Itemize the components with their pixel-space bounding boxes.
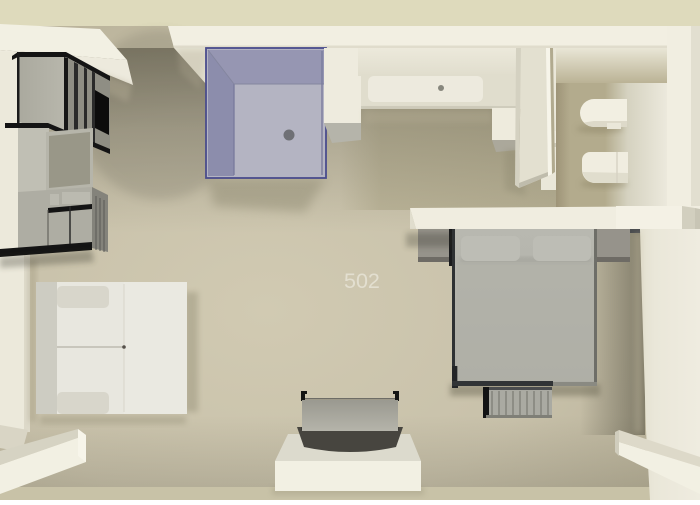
svg-text:502: 502 [344,269,380,293]
